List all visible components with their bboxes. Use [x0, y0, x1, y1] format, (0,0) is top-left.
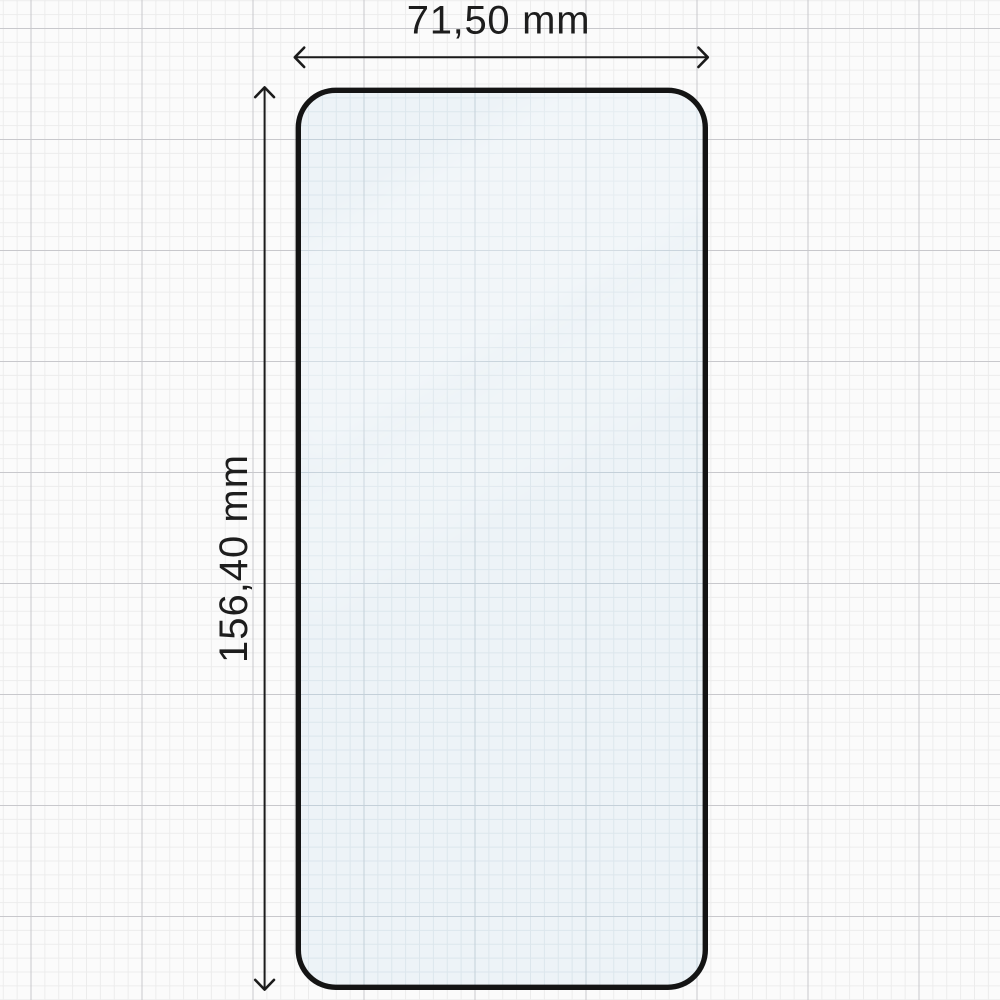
svg-text:156,40 mm: 156,40 mm [212, 454, 256, 663]
svg-text:71,50 mm: 71,50 mm [407, 0, 590, 43]
